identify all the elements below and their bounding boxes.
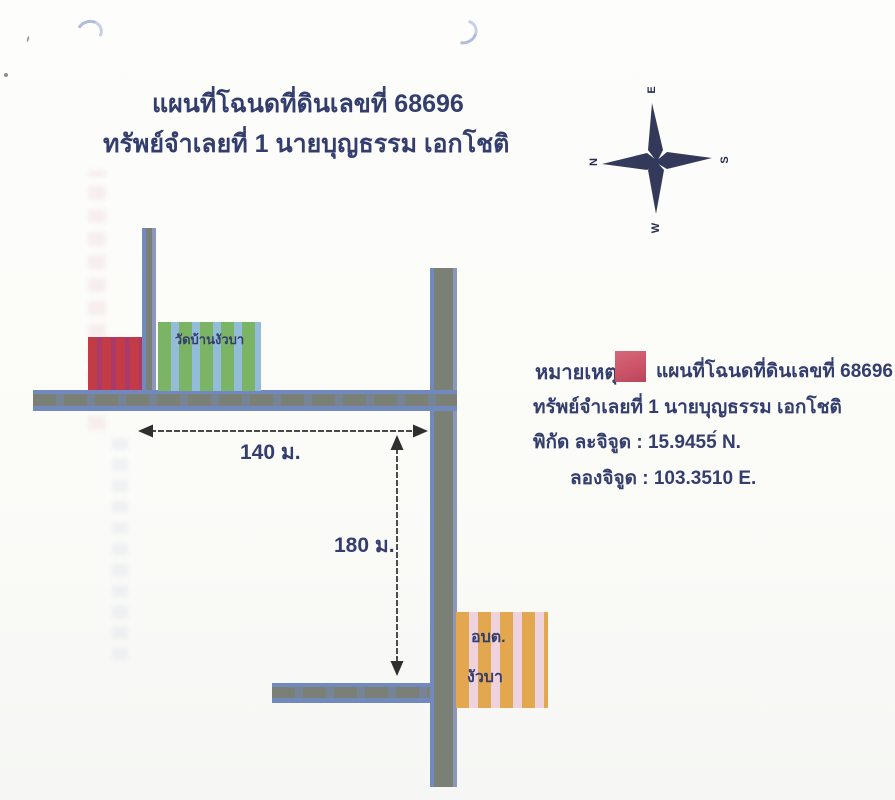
binder-ring-mark <box>447 15 482 49</box>
sao-office-building: อบต. งัวบา <box>456 612 548 708</box>
temple-building: วัดบ้านงัวบา <box>158 322 261 391</box>
binder-ring-mark <box>73 16 106 47</box>
road-vertical-small <box>142 228 156 391</box>
compass-rose: E N S W <box>585 80 735 238</box>
road-horizontal-main <box>33 390 457 411</box>
compass-north-label: N <box>588 158 600 166</box>
compass-south-label: S <box>719 156 731 163</box>
compass-star <box>602 103 712 214</box>
legend-line-longitude: ลองจิจูด : 103.3510 E. <box>570 463 756 493</box>
scan-speck <box>26 36 29 42</box>
road-horizontal-bottom <box>272 683 430 703</box>
distance-label-horizontal: 140 ม. <box>240 436 301 469</box>
sao-label-line2: งัวบา <box>467 665 503 690</box>
legend-line-latitude: พิกัด ละจิจูด : 15.9455́ N. <box>533 427 741 457</box>
compass-west-label: W <box>650 222 662 233</box>
page-subtitle: ทรัพย์จำเลยที่ 1 นายบุญธรรม เอกโชติ <box>103 124 509 164</box>
scan-speck <box>4 73 8 77</box>
scanned-map-page: { "document": { "title_line1": "แผนที่โฉ… <box>0 0 895 800</box>
legend-note-label: หมายเหตุ <box>535 356 617 388</box>
road-vertical-main <box>430 268 457 787</box>
distance-label-vertical: 180 ม. <box>334 529 395 562</box>
ghost-text-bleed <box>112 430 128 660</box>
page-title: แผนที่โฉนดที่ดินเลขที่ 68696 <box>152 84 464 124</box>
legend-line-deed: แผนที่โฉนดที่ดินเลขที่ 68696 <box>656 356 893 386</box>
property-parcel-68696 <box>88 337 142 390</box>
legend-line-defendant: ทรัพย์จำเลยที่ 1 นายบุญธรรม เอกโชติ <box>533 392 842 422</box>
compass-east-label: E <box>646 86 658 93</box>
sao-label-line1: อบต. <box>471 625 506 650</box>
temple-label: วัดบ้านงัวบา <box>175 332 244 347</box>
legend-red-swatch <box>615 351 646 382</box>
